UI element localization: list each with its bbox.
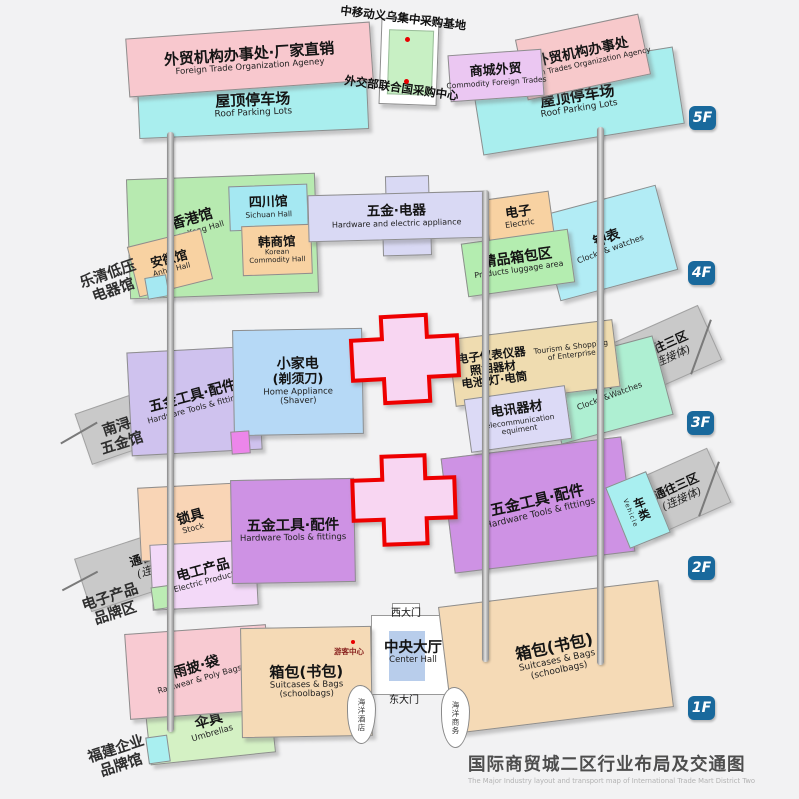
region-home-appliance: 小家电 (剃须刀) Home Appliance (Shaver): [232, 328, 364, 436]
region-korean-commodity-hall: 韩商馆 Korean Commodity Hall: [241, 224, 313, 276]
support-pole: [167, 132, 174, 732]
label-tourist-center: 游客中心: [334, 646, 364, 657]
map-subtitle: The Major Industry layout and transport …: [468, 777, 732, 785]
map-caption: 国际商贸城二区行业布局及交通图 The Major Industry layou…: [468, 751, 732, 785]
red-dot-marker: [404, 79, 409, 84]
region-commodity-foreign-trades: 商城外贸 Commodity Foreign Trades: [447, 49, 544, 102]
red-dot-marker: [351, 640, 355, 644]
label-yueqing-hall: 乐清低压电器馆: [78, 258, 144, 310]
label-fujian-brand-hall: 福建企业品牌馆: [86, 733, 152, 784]
atrium-cross-3f: [348, 311, 463, 407]
region-hardware-tools-2f-west: 五金工具·配件 Hardware Tools & fittings: [230, 478, 356, 584]
floor-badge-5f: 5F: [689, 106, 716, 130]
trade-mart-map: 中移动义乌集中采购基地 外交部联合国采购中心 外贸机构办事处·厂家直销 Fore…: [0, 0, 799, 799]
map-title: 国际商贸城二区行业布局及交通图: [468, 751, 732, 776]
region-center-hall: 中央大厅 Center Hall: [371, 640, 455, 666]
label-ocean-business: 海洋商务: [441, 687, 470, 748]
support-pole: [482, 190, 489, 662]
floor-badge-3f: 3F: [687, 411, 714, 435]
small-region-patch: [144, 274, 169, 299]
label-east-gate: 东大门: [389, 691, 419, 706]
red-dot-marker: [405, 37, 410, 42]
floor-badge-2f: 2F: [688, 556, 715, 580]
support-pole: [597, 127, 604, 665]
small-region-patch: [230, 430, 251, 454]
label-west-gate: 西大门: [391, 604, 421, 619]
region-suitcases-east: 箱包(书包) Suitcases & Bags (schoolbags): [438, 580, 674, 734]
floor-badge-4f: 4F: [688, 261, 715, 285]
region-hardware-tools-2f-east: 五金工具·配件 Hardware Tools & fittings: [441, 436, 636, 573]
atrium-cross-2f: [349, 452, 458, 548]
region-hardware-electric: 五金·电器 Hardware and electric appliance: [307, 174, 485, 261]
floor-badge-1f: 1F: [688, 696, 715, 720]
